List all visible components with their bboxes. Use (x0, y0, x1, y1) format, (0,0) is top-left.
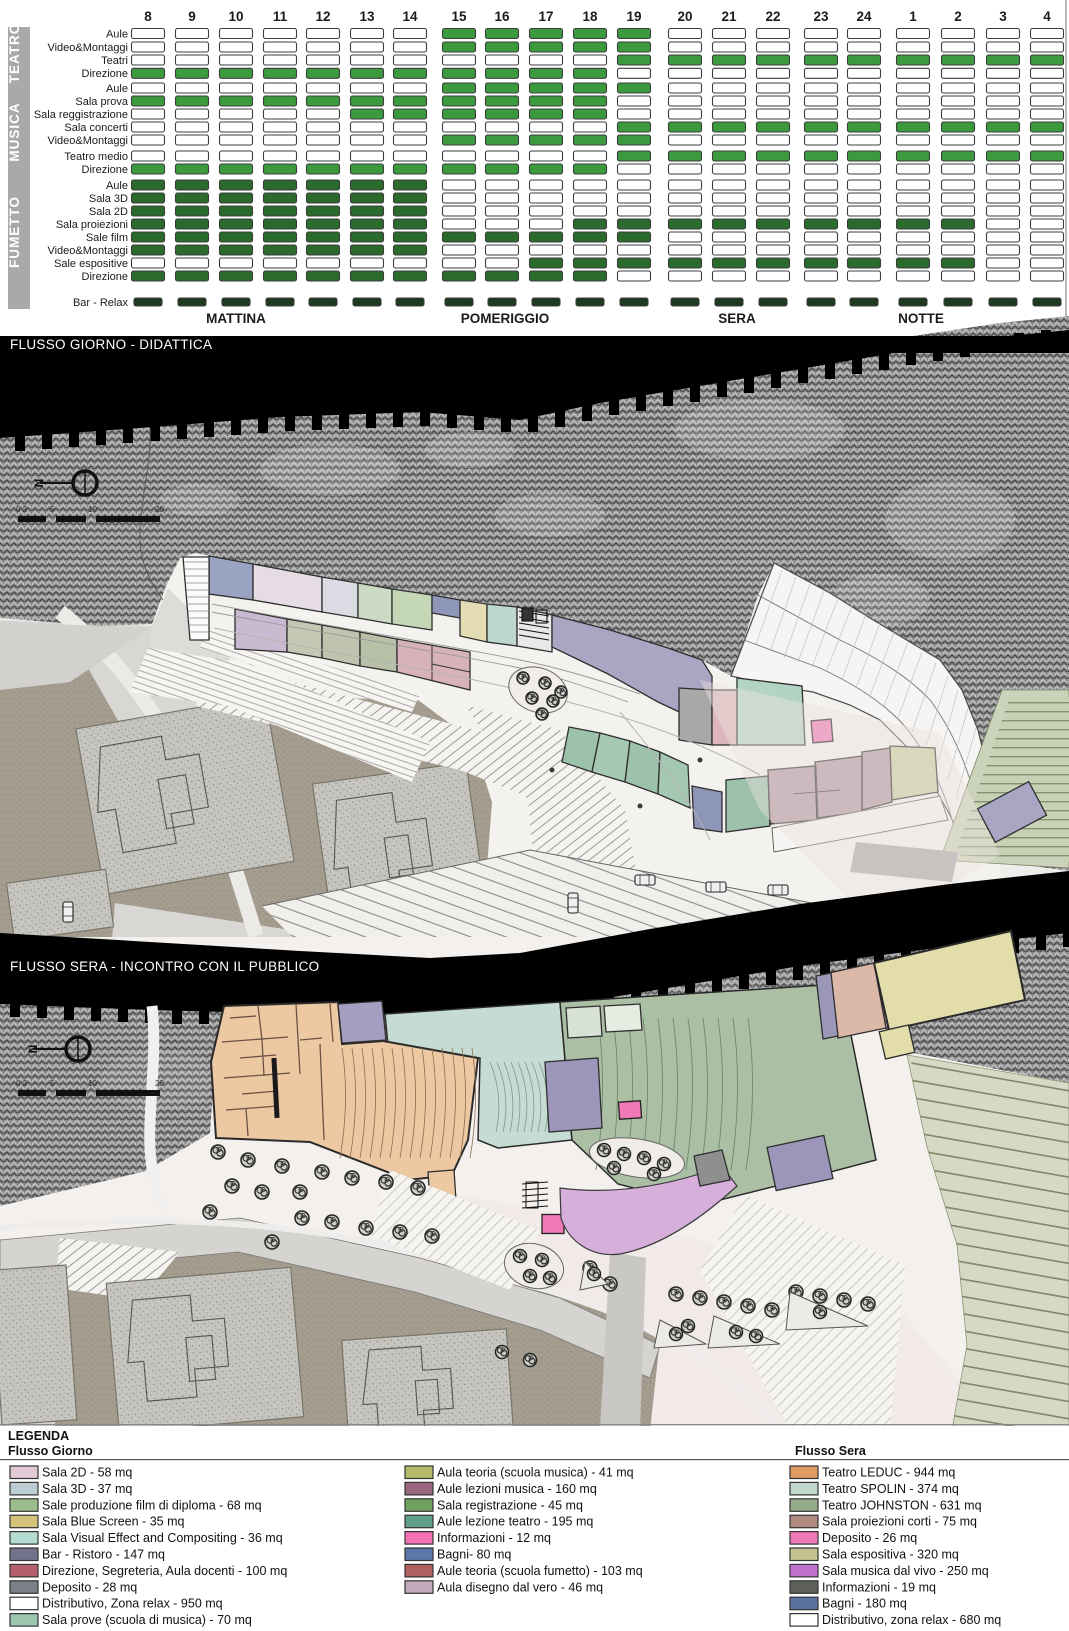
svg-text:Teatro medio: Teatro medio (64, 151, 128, 163)
svg-text:Sala concerti: Sala concerti (64, 122, 128, 134)
svg-text:18: 18 (582, 9, 598, 24)
svg-text:Sala prova: Sala prova (75, 96, 128, 108)
svg-text:Sale espositive: Sale espositive (54, 258, 128, 270)
svg-text:Aule lezioni musica - 160 mq: Aule lezioni musica - 160 mq (437, 1482, 597, 1496)
svg-text:POMERIGGIO: POMERIGGIO (461, 311, 550, 326)
svg-text:FLUSSO GIORNO - DIDATTICA: FLUSSO GIORNO - DIDATTICA (10, 337, 212, 352)
svg-text:1: 1 (909, 9, 917, 24)
svg-text:10: 10 (228, 9, 243, 24)
svg-text:Direzione: Direzione (82, 68, 128, 80)
svg-text:21: 21 (721, 9, 737, 24)
svg-text:Bar - Ristoro - 147 mq: Bar - Ristoro - 147 mq (42, 1548, 165, 1562)
svg-text:Aule lezione teatro - 195 mq: Aule lezione teatro - 195 mq (437, 1515, 593, 1529)
svg-text:Teatro JOHNSTON - 631 mq: Teatro JOHNSTON - 631 mq (822, 1498, 982, 1512)
svg-text:Aule: Aule (106, 28, 128, 40)
svg-text:Sala 3D - 37 mq: Sala 3D - 37 mq (42, 1482, 132, 1496)
svg-text:15: 15 (451, 9, 467, 24)
svg-text:8: 8 (144, 9, 152, 24)
svg-text:Sala prove (scuola di musica): Sala prove (scuola di musica) - 70 mq (42, 1613, 252, 1627)
svg-text:23: 23 (813, 9, 829, 24)
svg-text:13: 13 (359, 9, 375, 24)
svg-text:Distributivo, Zona relax - 950: Distributivo, Zona relax - 950 mq (42, 1597, 223, 1611)
svg-text:9: 9 (188, 9, 196, 24)
svg-text:Bagni- 80 mq: Bagni- 80 mq (437, 1548, 511, 1562)
svg-text:Video&Montaggi: Video&Montaggi (47, 245, 128, 257)
svg-text:Deposito - 26 mq: Deposito - 26 mq (822, 1531, 917, 1545)
svg-text:Bagni - 180 mq: Bagni - 180 mq (822, 1597, 907, 1611)
svg-text:5: 5 (50, 1079, 55, 1088)
svg-text:Sala 2D: Sala 2D (89, 206, 128, 218)
svg-text:Sala proiezioni: Sala proiezioni (56, 219, 128, 231)
svg-text:N: N (32, 479, 46, 488)
svg-text:Sala musica dal vivo - 250 mq: Sala musica dal vivo - 250 mq (822, 1564, 989, 1578)
svg-text:N: N (26, 1045, 40, 1054)
svg-text:Aule: Aule (106, 83, 128, 95)
svg-text:3: 3 (999, 9, 1007, 24)
svg-text:Direzione, Segreteria, Aula do: Direzione, Segreteria, Aula docenti - 10… (42, 1564, 287, 1578)
svg-text:Sala Blue Screen - 35 mq: Sala Blue Screen - 35 mq (42, 1515, 184, 1529)
svg-text:Informazioni - 19 mq: Informazioni - 19 mq (822, 1580, 936, 1594)
svg-text:Flusso Sera: Flusso Sera (795, 1444, 867, 1458)
svg-text:Aule teoria (scuola fumetto) -: Aule teoria (scuola fumetto) - 103 mq (437, 1564, 643, 1578)
svg-text:Informazioni - 12 mq: Informazioni - 12 mq (437, 1531, 551, 1545)
svg-text:Aula disegno dal vero - 46 mq: Aula disegno dal vero - 46 mq (437, 1580, 603, 1594)
svg-text:22: 22 (765, 9, 780, 24)
svg-text:Sale film: Sale film (86, 232, 128, 244)
svg-text:Sala espositiva - 320 mq: Sala espositiva - 320 mq (822, 1548, 959, 1562)
svg-text:NOTTE: NOTTE (898, 311, 944, 326)
svg-text:4: 4 (1043, 9, 1051, 24)
svg-text:Teatro SPOLIN - 374 mq: Teatro SPOLIN - 374 mq (822, 1482, 959, 1496)
svg-text:Video&Montaggi: Video&Montaggi (47, 42, 128, 54)
svg-text:19: 19 (626, 9, 641, 24)
svg-text:5: 5 (50, 505, 55, 514)
svg-text:20: 20 (155, 1079, 164, 1088)
svg-text:11: 11 (273, 9, 288, 24)
svg-text:10: 10 (88, 1079, 97, 1088)
svg-text:Sala registrazione - 45 mq: Sala registrazione - 45 mq (437, 1498, 583, 1512)
svg-text:Aule: Aule (106, 180, 128, 192)
svg-text:Teatro LEDUC - 944 mq: Teatro LEDUC - 944 mq (822, 1466, 955, 1480)
svg-text:20: 20 (677, 9, 692, 24)
svg-text:MATTINA: MATTINA (206, 311, 266, 326)
svg-text:TEATRO: TEATRO (7, 23, 22, 84)
svg-text:Video&Montaggi: Video&Montaggi (47, 135, 128, 147)
svg-text:FUMETTO: FUMETTO (7, 196, 22, 268)
svg-text:14: 14 (402, 9, 418, 24)
svg-text:Sala proiezioni corti - 75 mq: Sala proiezioni corti - 75 mq (822, 1515, 977, 1529)
svg-text:Deposito - 28 mq: Deposito - 28 mq (42, 1580, 137, 1594)
svg-text:Sala Visual Effect and Composi: Sala Visual Effect and Compositing - 36 … (42, 1531, 283, 1545)
svg-text:Teatri: Teatri (101, 55, 128, 67)
svg-text:Sale produzione film di diplom: Sale produzione film di diploma - 68 mq (42, 1498, 262, 1512)
svg-text:SERA: SERA (718, 311, 756, 326)
svg-text:20: 20 (155, 505, 164, 514)
svg-text:Sala 2D - 58 mq: Sala 2D - 58 mq (42, 1466, 132, 1480)
svg-text:Bar - Relax: Bar - Relax (73, 297, 129, 309)
svg-text:Sala reggistrazione: Sala reggistrazione (34, 109, 128, 121)
svg-text:MUSICA: MUSICA (7, 102, 22, 161)
svg-text:0 2: 0 2 (16, 1079, 28, 1088)
svg-text:16: 16 (494, 9, 510, 24)
svg-text:12: 12 (315, 9, 330, 24)
svg-text:17: 17 (538, 9, 553, 24)
svg-text:FLUSSO SERA - INCONTRO CON IL: FLUSSO SERA - INCONTRO CON IL PUBBLICO (10, 959, 319, 974)
svg-text:24: 24 (856, 9, 872, 24)
svg-text:LEGENDA: LEGENDA (8, 1429, 69, 1443)
svg-text:Aula teoria (scuola musica) -: Aula teoria (scuola musica) - 41 mq (437, 1466, 634, 1480)
svg-text:Distributivo, zona relax - 680: Distributivo, zona relax - 680 mq (822, 1613, 1001, 1627)
svg-text:10: 10 (88, 505, 97, 514)
svg-text:Sala 3D: Sala 3D (89, 193, 128, 205)
svg-text:2: 2 (954, 9, 962, 24)
svg-text:0 2: 0 2 (16, 505, 28, 514)
svg-text:Direzione: Direzione (82, 271, 128, 283)
svg-text:Flusso Giorno: Flusso Giorno (8, 1444, 93, 1458)
svg-text:Direzione: Direzione (82, 164, 128, 176)
